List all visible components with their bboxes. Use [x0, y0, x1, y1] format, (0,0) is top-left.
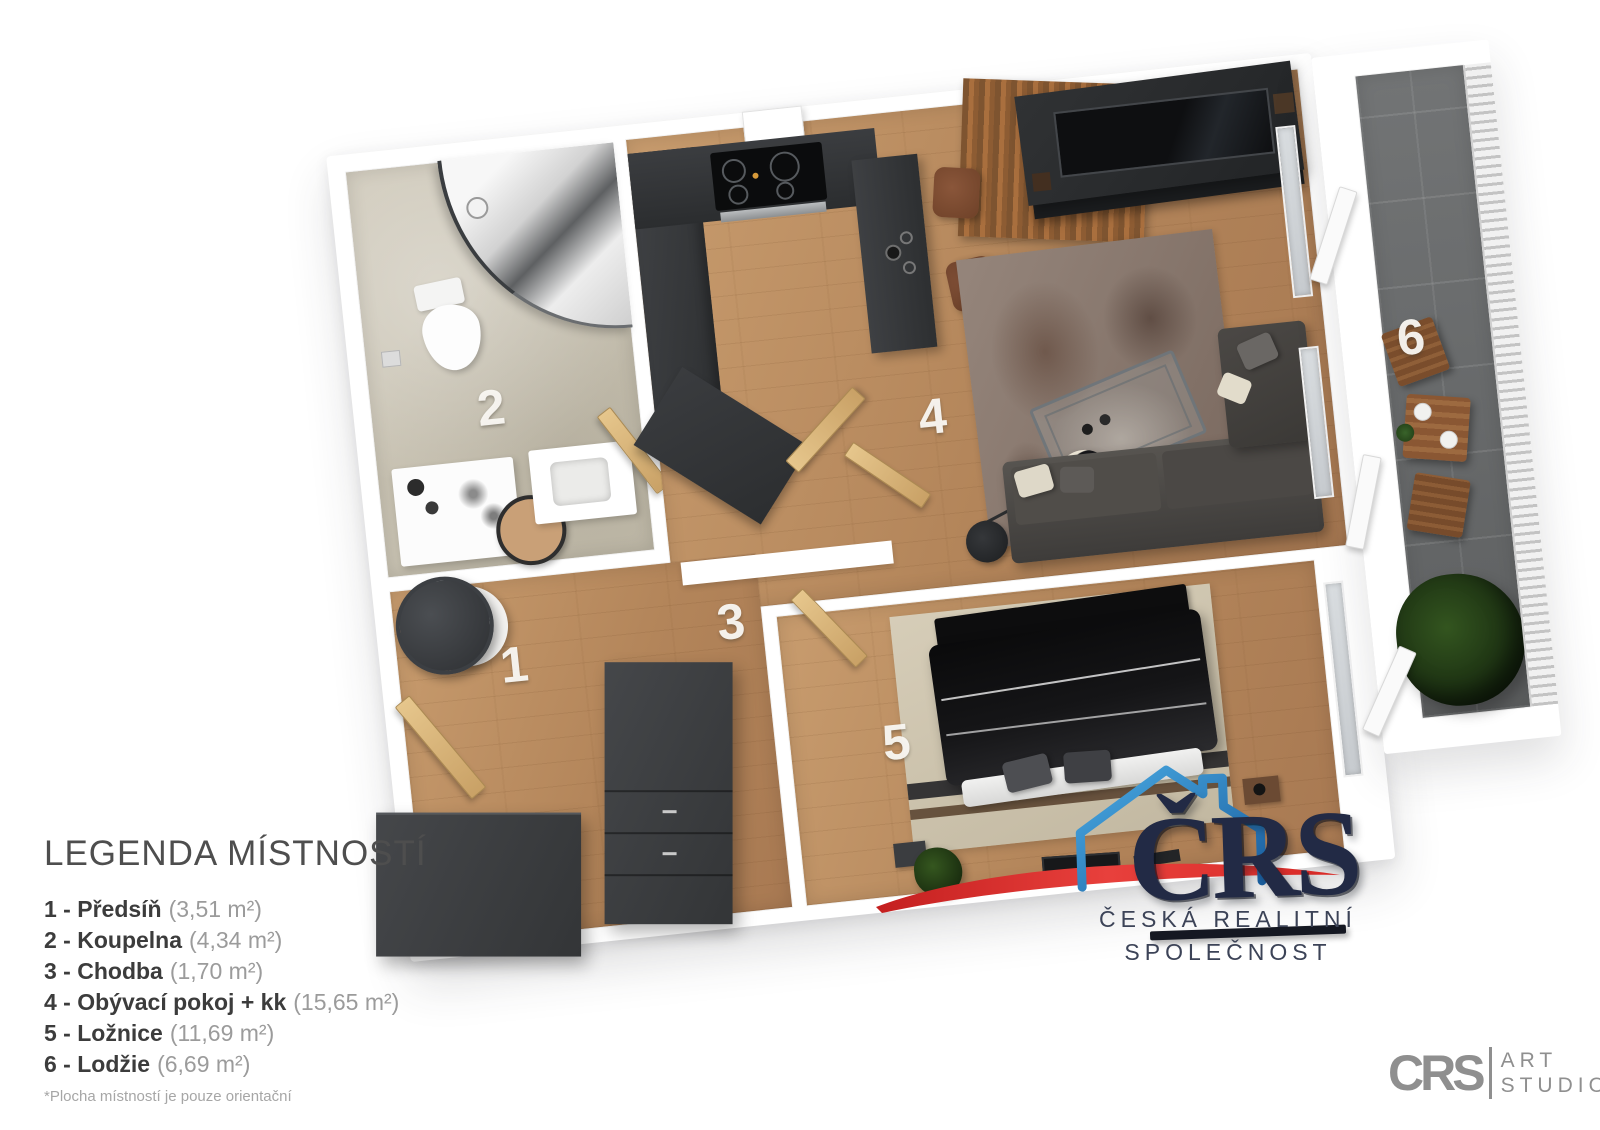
room-number-4: 4 — [916, 390, 949, 443]
legend-footnote: *Plocha místností je pouze orientační — [44, 1088, 427, 1105]
drawer-cabinet — [605, 662, 733, 924]
legend-item-name: 2 - Koupelna — [44, 927, 182, 953]
loggia-bush — [1390, 567, 1531, 712]
crs-name-line1: ČESKÁ REALITNÍ — [1088, 906, 1368, 933]
floorplan-page: 2 — [0, 0, 1600, 1130]
room-number-3: 3 — [714, 595, 747, 648]
bistro-chair — [1406, 472, 1470, 538]
table-plant — [1396, 423, 1415, 442]
legend-item-4: 4 - Obývací pokoj + kk(15,65 m²) — [44, 987, 427, 1018]
legend-item-area: (3,51 m²) — [169, 896, 262, 922]
burner — [727, 184, 749, 206]
basin — [549, 457, 611, 507]
speaker — [1273, 92, 1295, 114]
legend-item-area: (6,69 m²) — [157, 1051, 250, 1077]
burner-light — [752, 172, 759, 179]
crs-name-line2: SPOLEČNOST — [1088, 939, 1368, 966]
drawer-seam — [605, 874, 733, 876]
plate — [1413, 402, 1432, 421]
toilet-bowl — [418, 299, 488, 376]
legend-title: LEGENDA MÍSTNOSTÍ — [44, 834, 427, 874]
studio-text: ART STUDIO — [1501, 1048, 1600, 1098]
legend-item-1: 1 - Předsíň(3,51 m²) — [44, 894, 427, 925]
room-number-1: 1 — [498, 638, 531, 691]
studio-line-art: ART — [1501, 1048, 1600, 1073]
bar-stool — [932, 167, 981, 219]
burner — [721, 158, 747, 184]
art-studio-logo: CRS ART STUDIO — [1388, 1047, 1600, 1099]
legend-item-area: (11,69 m²) — [170, 1020, 274, 1046]
room-living-kitchen: 4 — [626, 69, 1347, 615]
legend-item-6: 6 - Lodžie(6,69 m²) — [44, 1049, 427, 1080]
legend-item-name: 3 - Chodba — [44, 958, 163, 984]
plate — [1439, 430, 1458, 449]
crs-letters: ČRS — [1126, 792, 1359, 922]
legend-item-2: 2 - Koupelna(4,34 m²) — [44, 925, 427, 956]
bistro-table — [1402, 394, 1470, 462]
wardrobe-door-open — [395, 695, 487, 799]
legend-item-3: 3 - Chodba(1,70 m²) — [44, 956, 427, 987]
burner — [775, 181, 795, 201]
legend-item-name: 4 - Obývací pokoj + kk — [44, 989, 286, 1015]
sofa-pillow-grey — [1060, 467, 1094, 493]
drawer-handle — [663, 810, 677, 813]
legend-item-5: 5 - Ložnice(11,69 m²) — [44, 1018, 427, 1049]
toilet-paper-holder — [381, 350, 402, 368]
legend-item-area: (15,65 m²) — [293, 989, 399, 1015]
room-number-2: 2 — [475, 381, 508, 434]
room-number-5: 5 — [880, 716, 913, 769]
room-bathroom: 2 — [346, 145, 654, 578]
induction-hob — [710, 142, 827, 211]
studio-crs-mark: CRS — [1388, 1048, 1482, 1098]
legend-item-area: (1,70 m²) — [170, 958, 263, 984]
hall-door-open — [844, 442, 931, 509]
legend-item-name: 5 - Ložnice — [44, 1020, 163, 1046]
bedroom-door-open — [790, 588, 868, 667]
legend: LEGENDA MÍSTNOSTÍ 1 - Předsíň(3,51 m²) 2… — [44, 834, 427, 1105]
legend-item-name: 6 - Lodžie — [44, 1051, 150, 1077]
legend-item-area: (4,34 m²) — [189, 927, 282, 953]
drawer-seam — [605, 790, 733, 792]
room-entry-hall: 1 3 — [390, 554, 792, 945]
speaker — [1032, 172, 1052, 192]
burner — [768, 150, 801, 183]
drawer-seam — [605, 832, 733, 834]
legend-items: 1 - Předsíň(3,51 m²) 2 - Koupelna(4,34 m… — [44, 894, 427, 1080]
room-number-6: 6 — [1394, 311, 1427, 364]
studio-divider — [1489, 1047, 1492, 1099]
legend-item-name: 1 - Předsíň — [44, 896, 162, 922]
drawer-handle — [663, 852, 677, 855]
studio-line-studio: STUDIO — [1501, 1073, 1600, 1098]
